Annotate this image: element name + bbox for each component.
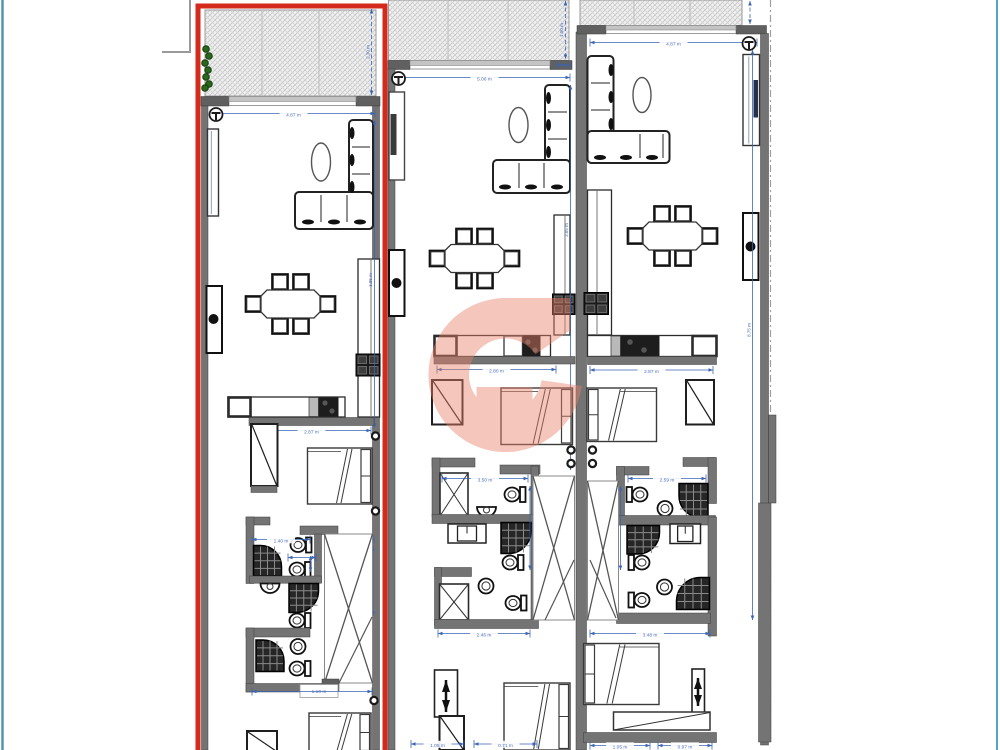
- svg-text:4.87 m: 4.87 m: [286, 113, 301, 119]
- svg-text:2.80 m: 2.80 m: [489, 369, 504, 375]
- svg-text:2.30 m: 2.30 m: [366, 45, 371, 59]
- svg-text:2.87 m: 2.87 m: [304, 430, 319, 436]
- svg-text:1.05 m: 1.05 m: [430, 743, 445, 749]
- svg-text:2.46 m: 2.46 m: [477, 633, 492, 639]
- svg-text:5.06 m: 5.06 m: [477, 77, 492, 83]
- svg-text:8.75 m: 8.75 m: [747, 323, 752, 337]
- svg-text:0.97 m: 0.97 m: [678, 745, 693, 750]
- svg-text:3.48 m: 3.48 m: [643, 633, 658, 639]
- svg-text:3.85 m: 3.85 m: [564, 223, 569, 237]
- svg-text:2.87 m: 2.87 m: [644, 369, 659, 375]
- svg-text:4.87 m: 4.87 m: [666, 42, 681, 48]
- svg-text:1.05 m: 1.05 m: [613, 745, 628, 750]
- svg-text:0.71 m: 0.71 m: [498, 743, 513, 749]
- svg-text:1.50 m: 1.50 m: [559, 23, 564, 37]
- svg-text:1.40 m: 1.40 m: [274, 539, 289, 545]
- svg-text:2.59 m: 2.59 m: [660, 478, 675, 484]
- svg-text:3.85 m: 3.85 m: [368, 273, 373, 287]
- svg-text:1.10 m: 1.10 m: [312, 689, 327, 695]
- svg-text:3.50 m: 3.50 m: [478, 478, 493, 484]
